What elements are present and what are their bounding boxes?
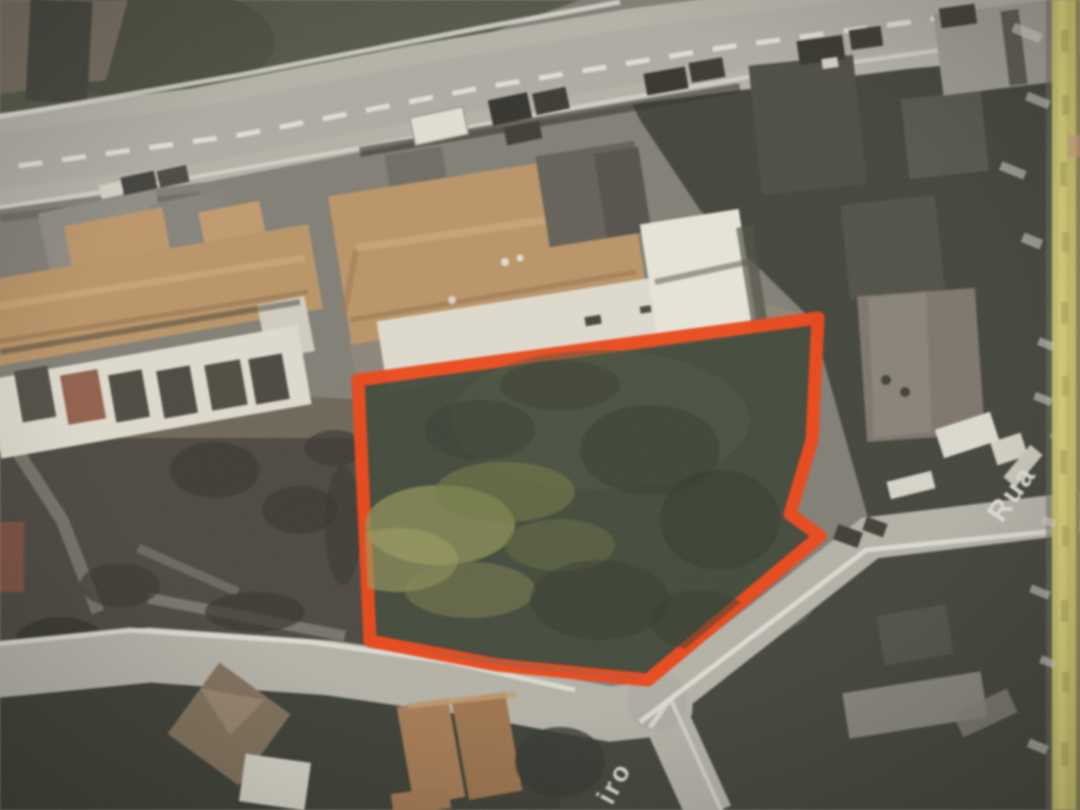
satellite-map: Rua iro: [0, 0, 1080, 810]
photo-of-satellite-map: Rua iro: [0, 0, 1080, 810]
photo-vignette: [0, 0, 1080, 810]
